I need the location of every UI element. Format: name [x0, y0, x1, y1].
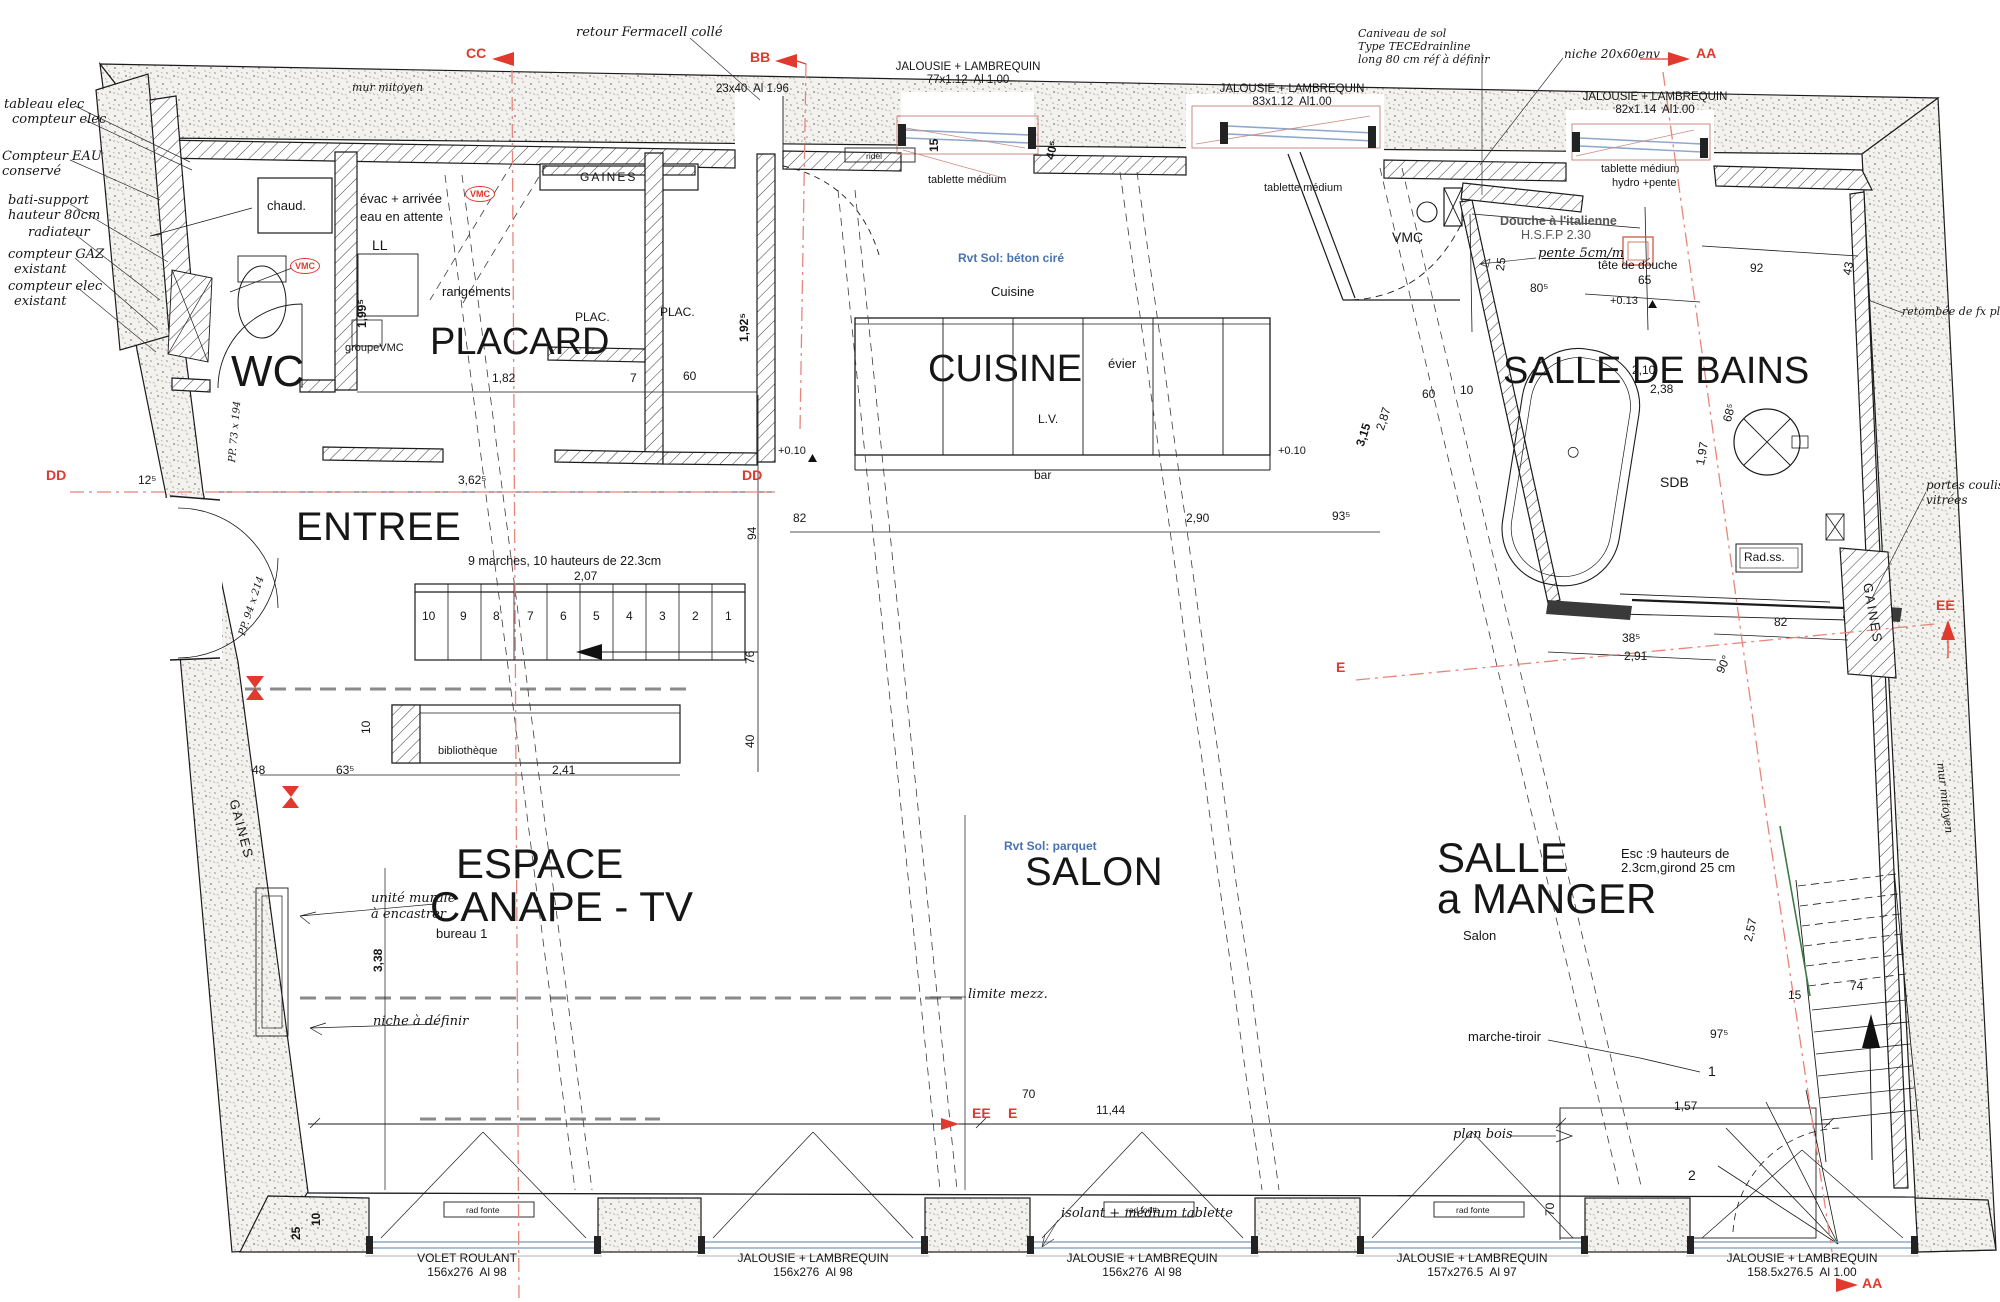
window-bottom-3-size: 156x276 Al 98 — [1102, 1266, 1181, 1278]
section-marker-dd-right: DD — [742, 468, 762, 482]
anno-douche-1: Douche à l'italienne — [1500, 215, 1617, 228]
dim-65: 65 — [1638, 274, 1651, 286]
room-entree: ENTREE — [296, 507, 461, 547]
label-bureau: bureau 1 — [436, 927, 487, 940]
anno-isolant: isolant + médium tablette — [1061, 1207, 1233, 1220]
dim-25-bottom: 25 — [290, 1227, 302, 1240]
dim-48: 48 — [252, 764, 265, 776]
dim-25-shower: 25 — [1494, 257, 1508, 272]
dim-338: 3,38 — [372, 949, 384, 972]
dim-1-step: 1 — [1708, 1064, 1716, 1078]
label-rad-fonte-1: rad fonte — [466, 1205, 500, 1215]
window-bottom-1-type: VOLET ROULANT — [417, 1252, 517, 1264]
dim-94: 94 — [746, 527, 758, 540]
section-marker-dd-left: DD — [46, 468, 66, 482]
label-rad-fonte-3: rad fonte — [1456, 1205, 1490, 1215]
window-top-1-size: 77x1.12 Al 1.00 — [927, 75, 1009, 87]
anno-compteur-eau-1: Compteur EAU — [2, 150, 102, 163]
anno-esc-1: Esc :9 hauteurs de — [1621, 847, 1729, 860]
stair-num-2: 2 — [692, 610, 699, 622]
dim-82-kitchen: 82 — [793, 512, 806, 524]
anno-elec2-existant: existant — [14, 295, 66, 308]
room-placard: PLACARD — [430, 323, 610, 361]
anno-gaz-existant: existant — [14, 263, 66, 276]
label-marche-tiroir: marche-tiroir — [1468, 1030, 1541, 1043]
anno-caniveau-3: long 80 cm réf à définir — [1358, 54, 1489, 65]
dim-935: 93⁵ — [1332, 510, 1350, 522]
label-chaud: chaud. — [267, 199, 306, 212]
dim-15-window: 15 — [928, 139, 940, 152]
label-ridel: ridel — [866, 151, 882, 161]
room-wc: WC — [231, 350, 304, 394]
vmc-badge-2: VMC — [465, 186, 495, 202]
label-bibliotheque: bibliothèque — [438, 746, 497, 757]
anno-tableau-elec: tableau elec — [4, 98, 84, 111]
label-rad-ss: Rad.ss. — [1744, 551, 1785, 563]
anno-caniveau-2: Type TECEdrainline — [1358, 41, 1471, 52]
anno-evac-1: évac + arrivée — [360, 192, 442, 205]
stair-num-8: 8 — [493, 610, 500, 622]
dim-241: 2,41 — [552, 764, 575, 776]
dim-2-step: 2 — [1688, 1168, 1696, 1182]
stair-num-3: 3 — [659, 610, 666, 622]
section-marker-aa-top: AA — [1696, 46, 1716, 60]
level-013: +0.13 — [1610, 296, 1638, 307]
anno-gaz: compteur GAZ — [8, 248, 104, 261]
dim-157: 1,57 — [1674, 1100, 1697, 1112]
plan-linework — [0, 0, 2000, 1302]
dim-82-sdb: 82 — [1774, 616, 1787, 628]
dim-210: 2,10 — [1632, 364, 1655, 376]
anno-fermacell: retour Fermacell collé — [576, 26, 723, 39]
dim-197: 1,97 — [1694, 441, 1710, 466]
label-bar: bar — [1034, 469, 1051, 481]
dim-805: 80⁵ — [1530, 282, 1548, 294]
dim-60-vmc: 60 — [1422, 388, 1435, 400]
section-marker-bb: BB — [750, 50, 770, 64]
label-salon-small: Salon — [1463, 929, 1496, 942]
anno-rvt-beton: Rvt Sol: béton ciré — [958, 252, 1064, 264]
anno-marches: 9 marches, 10 hauteurs de 22.3cm — [468, 555, 661, 568]
anno-portes-1: portes coulis — [1926, 479, 2000, 491]
window-bottom-1-size: 156x276 Al 98 — [427, 1266, 506, 1278]
window-top-1-type: JALOUSIE + LAMBREQUIN — [896, 62, 1041, 74]
label-tablette-1: tablette médium — [928, 175, 1006, 186]
dim-385: 38⁵ — [1622, 632, 1640, 644]
dim-405: 40⁵ — [1044, 139, 1060, 160]
section-marker-ee-bottom: EE — [972, 1106, 991, 1120]
anno-niche-2060: niche 20x60env — [1564, 48, 1660, 60]
anno-compteur-elec: compteur elec — [12, 113, 106, 126]
dim-10-bottom: 10 — [310, 1213, 322, 1226]
anno-evac-2: eau en attente — [360, 210, 443, 223]
window-top-2-type: JALOUSIE + LAMBREQUIN — [1220, 84, 1365, 96]
window-top-3-type: JALOUSIE + LAMBREQUIN — [1583, 92, 1728, 104]
vmc-badge-1: VMC — [290, 258, 320, 274]
stair-num-9: 9 — [460, 610, 467, 622]
label-plan-bois: plan bois — [1453, 1128, 1513, 1141]
anno-elec2: compteur elec — [8, 280, 102, 293]
room-canape-tv: CANAPE - TV — [430, 886, 693, 928]
anno-rvt-parquet: Rvt Sol: parquet — [1004, 840, 1097, 852]
dim-74: 74 — [1850, 980, 1863, 992]
stair-num-4: 4 — [626, 610, 633, 622]
label-tablette-3: tablette médium — [1601, 164, 1679, 175]
level-010-left: +0.10 — [778, 446, 806, 457]
dim-92: 92 — [1750, 262, 1763, 274]
dim-40: 40 — [744, 735, 756, 748]
anno-caniveau-1: Caniveau de sol — [1358, 28, 1446, 39]
dim-3625b: 3,62⁵ — [458, 474, 486, 486]
window-bottom-4-size: 157x276.5 Al 97 — [1427, 1266, 1516, 1278]
room-salon: SALON — [1025, 852, 1163, 892]
dim-199: 1,99⁵ — [356, 299, 368, 328]
anno-esc-2: 2.3cm,girond 25 cm — [1621, 861, 1735, 874]
dim-1144: 11,44 — [1096, 1104, 1125, 1116]
window-bottom-2-size: 156x276 Al 98 — [773, 1266, 852, 1278]
floor-plan-canvas: CC BB AA AA DD DD EE EE E E WC PLACARD E… — [0, 0, 2000, 1302]
dim-125: 12⁵ — [138, 474, 156, 486]
dim-76: 76 — [744, 651, 756, 664]
section-marker-ee-right: EE — [1936, 598, 1955, 612]
dim-192: 1,92⁵ — [738, 313, 750, 342]
dim-182: 1,82 — [492, 372, 515, 384]
dim-10-biblio: 10 — [360, 721, 372, 734]
anno-mur-mitoyen-top: mur mitoyen — [352, 82, 423, 93]
label-vmc-room: VMC — [1392, 230, 1423, 244]
dim-290: 2,90 — [1186, 512, 1209, 524]
room-espace: ESPACE — [456, 843, 623, 885]
label-plac-2: PLAC. — [660, 306, 695, 318]
label-groupe-vmc: groupeVMC — [345, 343, 404, 354]
anno-douche-2: H.S.F.P 2.30 — [1521, 229, 1591, 242]
anno-unite-2: à encastrer — [371, 908, 446, 921]
window-bottom-5-type: JALOUSIE + LAMBREQUIN — [1726, 1252, 1877, 1264]
anno-unite-1: unité murale — [371, 892, 455, 905]
anno-portes-2: vitrées — [1926, 494, 1968, 506]
anno-compteur-eau-2: conservé — [2, 165, 61, 178]
label-tablette-hydro: hydro +pente — [1612, 178, 1677, 189]
anno-retombee: retombée de fx pld — [1902, 306, 2000, 317]
dim-10-vmc: 10 — [1460, 384, 1473, 396]
window-bottom-3-type: JALOUSIE + LAMBREQUIN — [1066, 1252, 1217, 1264]
anno-bati-2: hauteur 80cm — [8, 209, 100, 222]
dim-7: 7 — [630, 372, 637, 384]
dim-43: 43 — [1841, 261, 1855, 276]
stair-num-6: 6 — [560, 610, 567, 622]
label-plac-1: PLAC. — [575, 311, 610, 323]
section-marker-cc: CC — [466, 46, 486, 60]
dim-70-salon: 70 — [1022, 1088, 1035, 1100]
window-bottom-2-type: JALOUSIE + LAMBREQUIN — [737, 1252, 888, 1264]
anno-bati-1: bati-support — [8, 194, 89, 207]
anno-niche-def: niche à définir — [373, 1015, 468, 1028]
dim-238: 2,38 — [1650, 383, 1673, 395]
window-top-2-size: 83x1.12 Al1.00 — [1252, 97, 1331, 109]
stair-num-5: 5 — [593, 610, 600, 622]
section-marker-e-side: E — [1336, 660, 1345, 674]
dim-635: 63⁵ — [336, 764, 354, 776]
stair-num-1: 1 — [725, 610, 732, 622]
label-evier: évier — [1108, 357, 1136, 370]
anno-tete-douche: tête de douche — [1598, 259, 1677, 271]
label-gaines-top: GAINES — [580, 171, 637, 183]
dim-291: 2,91 — [1624, 650, 1647, 662]
dim-70-box: 70 — [1544, 1203, 1556, 1216]
dim-975: 97⁵ — [1710, 1028, 1728, 1040]
stair-num-10: 10 — [422, 610, 435, 622]
label-lv: L.V. — [1038, 413, 1058, 425]
room-salle: SALLE — [1437, 837, 1568, 879]
label-ll: LL — [372, 238, 388, 252]
label-sdb-small: SDB — [1660, 475, 1689, 489]
room-cuisine: CUISINE — [928, 350, 1082, 388]
label-cuisine-small: Cuisine — [991, 285, 1034, 298]
stair-num-7: 7 — [527, 610, 534, 622]
dim-207: 2,07 — [574, 570, 597, 582]
dim-15-esc: 15 — [1788, 989, 1801, 1001]
label-rangements: rangements — [442, 285, 511, 298]
level-010-right: +0.10 — [1278, 446, 1306, 457]
beam-dim: 23x40 Al 1.96 — [716, 84, 789, 96]
room-a-manger: a MANGER — [1437, 878, 1656, 920]
anno-radiateur: radiateur — [28, 226, 90, 239]
label-tablette-2: tablette médium — [1264, 183, 1342, 194]
dim-60: 60 — [683, 370, 696, 382]
section-marker-e-bottom: E — [1008, 1106, 1017, 1120]
window-top-3-size: 82x1.14 Al1.00 — [1615, 105, 1694, 117]
anno-limite-mezz: limite mezz. — [968, 988, 1048, 1001]
section-marker-aa-bottom: AA — [1862, 1276, 1882, 1290]
window-bottom-5-size: 158.5x276.5 Al 1.00 — [1747, 1266, 1856, 1278]
window-bottom-4-type: JALOUSIE + LAMBREQUIN — [1396, 1252, 1547, 1264]
